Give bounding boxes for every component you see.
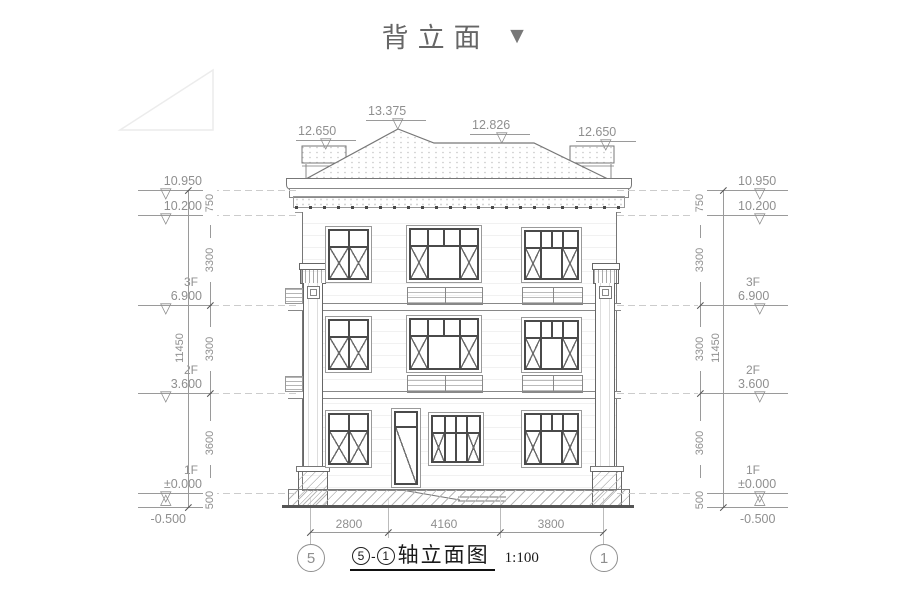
dim-label: 3600 [693,421,707,465]
window-1f-right [521,410,582,468]
level-leader [617,493,698,494]
dim-label-overall: 11450 [173,326,187,370]
window-3f-middle [406,225,482,283]
sill-rail-2f-right [522,375,583,393]
caption-scale: 1:100 [505,550,539,571]
elevation-value: -0.500 [151,512,186,526]
elevation-triangle-icon: ▽ [320,136,332,151]
dim-label: 3300 [203,327,217,371]
elevation-triangle-icon: ▽ [160,211,172,226]
dim-label: 500 [203,478,217,522]
bottom-dim-line [310,532,603,533]
window-2f-left [325,316,372,373]
elevation-triangle-icon: ▽ [754,211,766,226]
dim-label: 500 [693,478,707,522]
dim-label: 3300 [693,238,707,282]
floor-label: 3F [746,275,760,289]
elevation-triangle-icon: ▽ [600,137,612,152]
entry-door [391,408,421,488]
level-leader [212,215,298,216]
caption-separator: - [371,548,376,564]
wall-bracket-upper [285,288,303,304]
elevation-triangle-icon: ▽ [160,301,172,316]
floor-label: 1F [746,463,760,477]
sill-rail-3f-middle [407,287,483,305]
elevation-triangle-icon: ▽ [392,116,404,131]
elevation-value: 6.900 [171,289,202,303]
window-3f-right [521,227,582,283]
elevation-triangle-icon: ▽ [496,130,508,145]
dim-line-left-overall [188,190,189,507]
window-3f-left [325,226,372,283]
wall-bracket-lower [285,376,303,392]
level-leader [212,493,298,494]
axis-bubble-5: 5 [297,544,325,572]
watermark-triangle [120,70,213,130]
floor-label: 3F [184,275,198,289]
elevation-triangle-icon: ▽ [754,389,766,404]
elevation-triangle-icon: △ [754,492,766,507]
pilaster-left-capital [300,269,326,284]
ground-line [282,505,634,508]
level-leader [212,393,298,394]
dim-line-right-overall [723,190,724,507]
axis-number: 5 [307,550,315,567]
window-1f-middle [428,412,484,466]
elevation-value: 3.600 [171,377,202,391]
dim-label: 750 [203,181,217,225]
dim-label: 4160 [428,517,461,531]
window-2f-middle [406,315,482,373]
window-2f-right [521,317,582,373]
caption-axis-from: 5 [352,547,370,565]
floor-label: 2F [746,363,760,377]
elevation-triangle-icon: △ [160,492,172,507]
caption-title: 轴立面图 [398,545,490,566]
sill-rail-2f-middle [407,375,483,393]
pilaster-left [303,283,323,470]
window-1f-left [325,410,372,468]
level-leader [617,393,698,394]
caption-axis-to: 1 [377,547,395,565]
sill-rail-3f-right [522,287,583,305]
main-roof [304,129,610,180]
pilaster-right-capital [593,269,619,284]
floor-label: 1F [184,463,198,477]
dim-label: 3800 [535,517,568,531]
elevation-triangle-icon: ▽ [160,389,172,404]
level-leader [617,215,698,216]
elevation-value: -0.500 [740,512,775,526]
pilaster-right-ornament [599,286,612,299]
pilaster-left-ornament [307,286,320,299]
axis-number: 1 [600,550,608,567]
axis-bubble-1: 1 [590,544,618,572]
dim-label-overall: 11450 [709,326,723,370]
caption-underlined: 5 - 1 轴立面图 [350,545,495,571]
dim-label: 750 [693,181,707,225]
level-leader [212,190,298,191]
drawing-caption: 5 - 1 轴立面图 1:100 [350,545,539,571]
level-leader [212,305,298,306]
elevation-drawing-sheet: 背立面 ▼ [0,0,910,616]
level-leader [617,190,698,191]
level-leader [617,305,698,306]
dim-label: 3300 [203,238,217,282]
dim-label: 3600 [203,421,217,465]
dim-label: 2800 [333,517,366,531]
elevation-triangle-icon: ▽ [754,301,766,316]
pilaster-right [595,283,615,470]
dim-label: 3300 [693,327,707,371]
